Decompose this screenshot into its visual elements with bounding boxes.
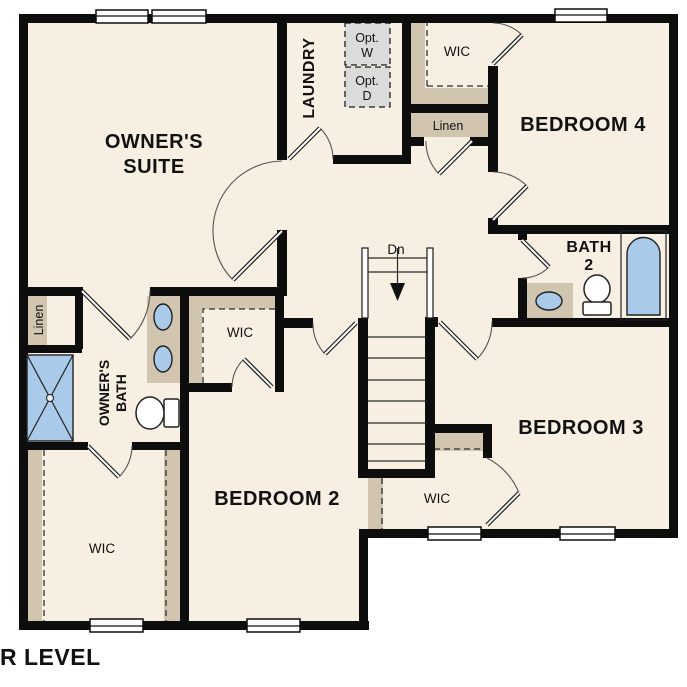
floor-plan: OWNER'S SUITE BEDROOM 4 BEDROOM 3 BEDROO… [0, 0, 687, 687]
closet-label-bedroom-4-wic: WIC [444, 44, 470, 59]
plan-title: UPPER LEVEL [0, 644, 101, 670]
owners-toilet [136, 397, 179, 429]
closet-label-owners-wic: WIC [89, 541, 115, 556]
bath-2-vanity-sink [536, 292, 562, 310]
closet-label-bedroom-2-wic: WIC [227, 325, 253, 340]
room-label-owners-suite-1: OWNER'S [105, 131, 203, 153]
room-label-bath-2-1: BATH [566, 239, 611, 256]
opt-washer-label-2: W [361, 46, 373, 60]
room-label-owners-suite-2: SUITE [123, 156, 184, 178]
room-label-bedroom-2: BEDROOM 2 [214, 488, 340, 510]
shower [27, 355, 73, 441]
opt-washer-label-1: Opt. [355, 31, 379, 45]
bath-2-toilet [583, 275, 611, 315]
closet-label-bedroom-3-wic: WIC [424, 491, 450, 506]
room-label-laundry: LAUNDRY [301, 37, 318, 118]
room-label-bedroom-3: BEDROOM 3 [518, 417, 644, 439]
room-label-owners-bath-2: BATH [113, 374, 129, 412]
room-label-bedroom-4: BEDROOM 4 [520, 114, 646, 136]
opt-dryer-label-2: D [362, 89, 371, 103]
stairs-label-dn: Dn [387, 242, 404, 257]
room-label-bath-2-2: 2 [584, 257, 593, 274]
opt-dryer-label-1: Opt. [355, 74, 379, 88]
room-label-owners-bath-1: OWNER'S [96, 360, 112, 426]
closet-label-hall-linen: Linen [433, 119, 464, 133]
closet-label-owners-linen: Linen [32, 305, 46, 336]
